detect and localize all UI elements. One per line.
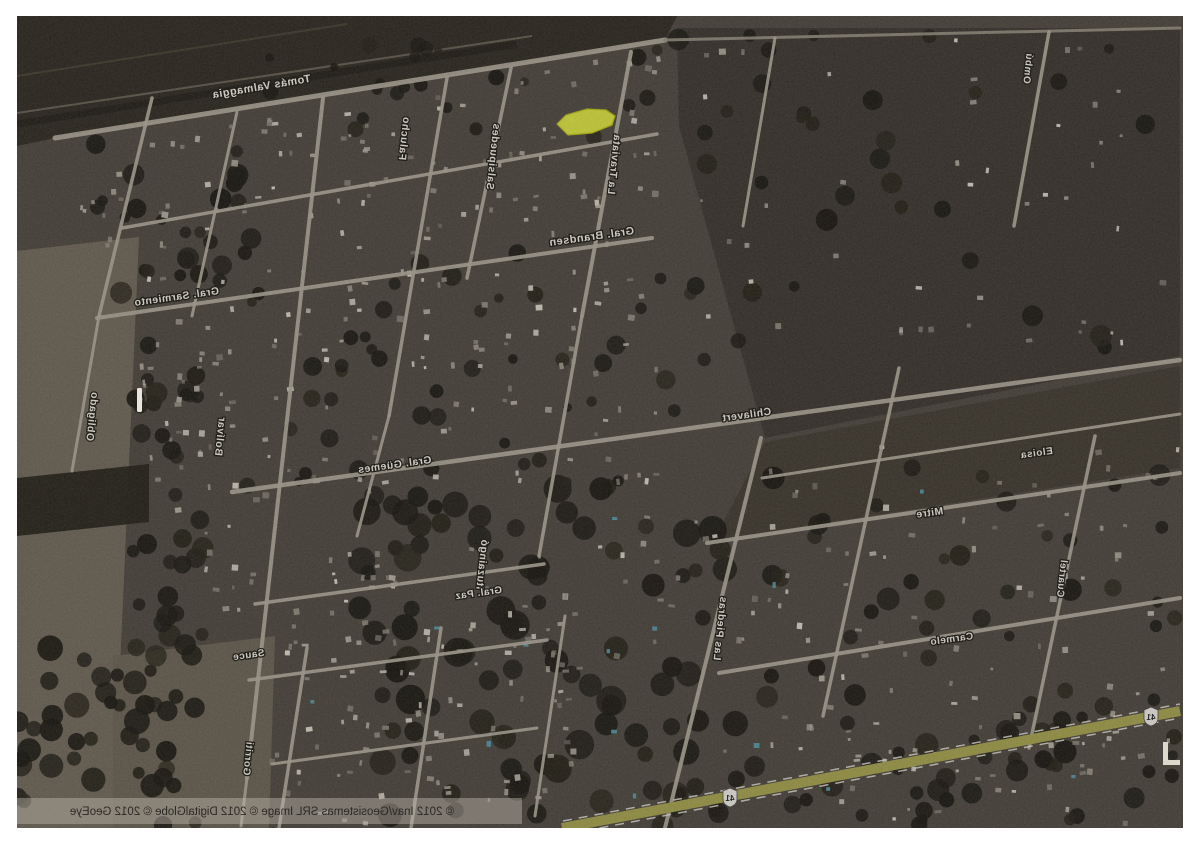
white-pole [137,388,142,412]
page-background: 4141 Tomás ValmaggiaFaluchoSalsipuedesLa… [0,0,1200,855]
map-attribution: © 2012 Inav/Geosistemas SRL Image © 2012… [70,806,454,818]
satellite-map[interactable]: 4141 Tomás ValmaggiaFaluchoSalsipuedesLa… [17,16,1183,828]
satellite-map-viewport[interactable]: 4141 Tomás ValmaggiaFaluchoSalsipuedesLa… [17,16,1183,828]
attribution-layer: © 2012 Inav/Geosistemas SRL Image © 2012… [17,798,522,824]
texture-overlay-light [17,16,1183,828]
